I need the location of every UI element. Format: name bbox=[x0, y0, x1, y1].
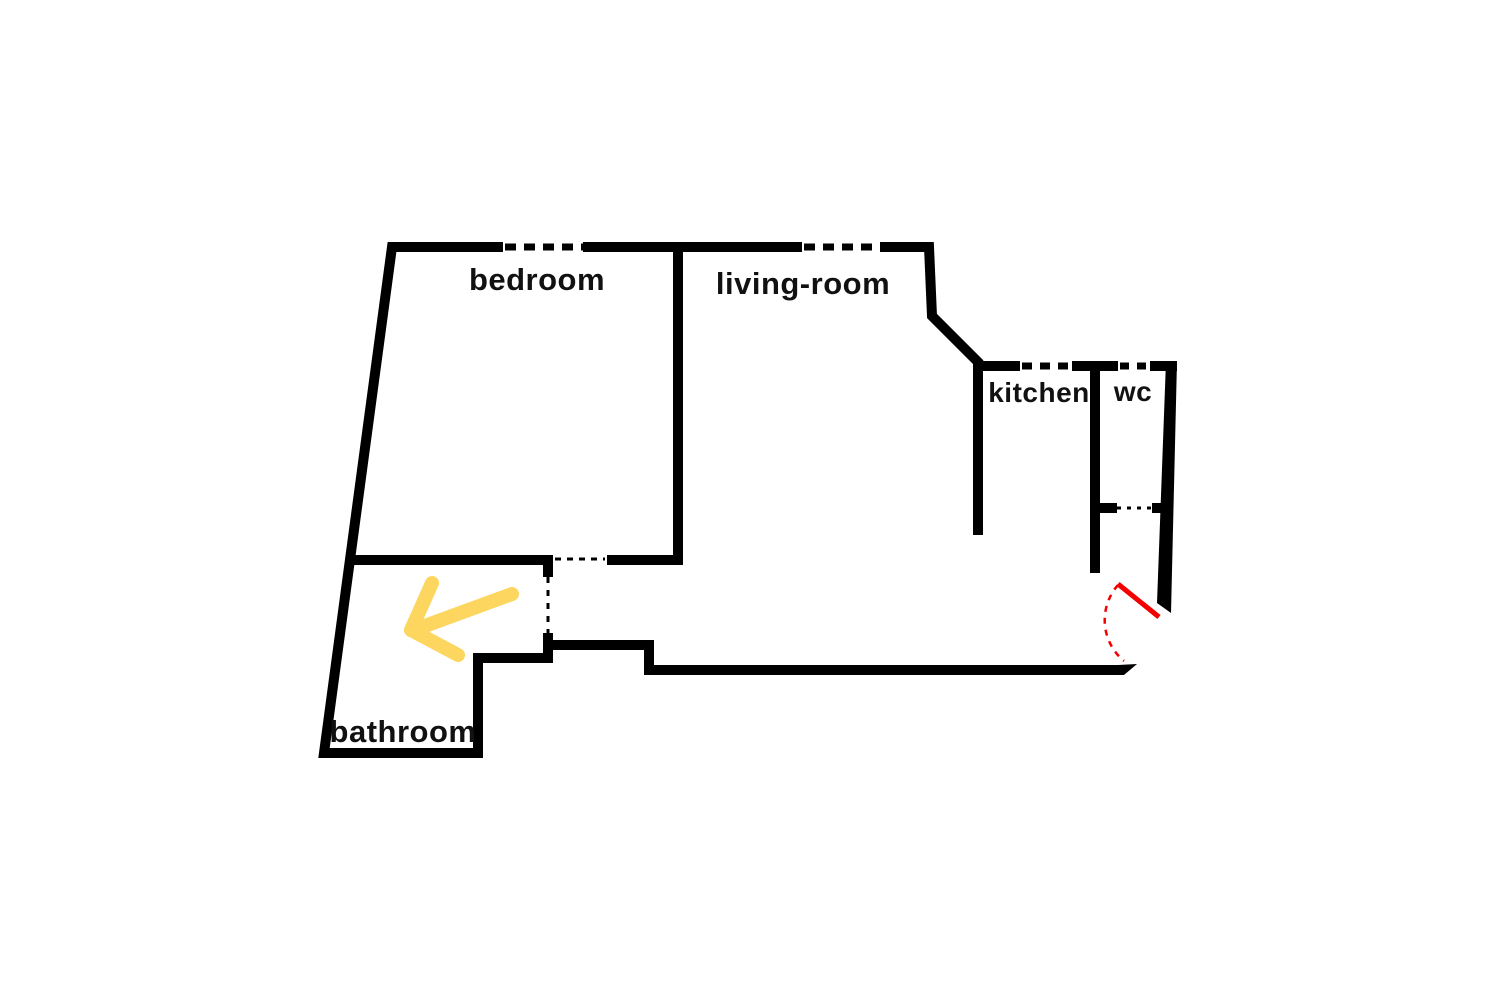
room-labels-group: bedroom living-room kitchen wc bathroom bbox=[330, 262, 1153, 749]
room-label-kitchen: kitchen bbox=[988, 377, 1090, 408]
room-label-bedroom: bedroom bbox=[469, 262, 605, 297]
wall-living-room-right-diagonal bbox=[880, 247, 980, 364]
entrance-door-group bbox=[1105, 584, 1159, 661]
floor-plan-canvas: bedroom living-room kitchen wc bathroom bbox=[0, 0, 1500, 1000]
room-label-bathroom: bathroom bbox=[330, 714, 477, 749]
entrance-door-swing-arc bbox=[1105, 585, 1124, 661]
walls-group bbox=[324, 242, 1177, 753]
walls-angled-ends-group bbox=[1118, 361, 1177, 675]
wall-hall-bottom-end-cut bbox=[1118, 664, 1137, 675]
wall-outer-left-and-bathroom bbox=[324, 247, 553, 753]
interior-doors-group bbox=[548, 508, 1152, 633]
wall-hall-bottom bbox=[543, 645, 1121, 670]
room-label-wc: wc bbox=[1113, 376, 1152, 407]
room-label-living-room: living-room bbox=[716, 266, 890, 301]
floor-plan-page: bedroom living-room kitchen wc bathroom bbox=[0, 0, 1500, 1000]
arrow-shaft bbox=[422, 594, 512, 627]
wall-wc-right-outer bbox=[1157, 361, 1177, 613]
direction-arrow-icon bbox=[411, 583, 512, 655]
entrance-door-leaf bbox=[1118, 584, 1159, 617]
arrow-head-lower bbox=[411, 630, 458, 655]
